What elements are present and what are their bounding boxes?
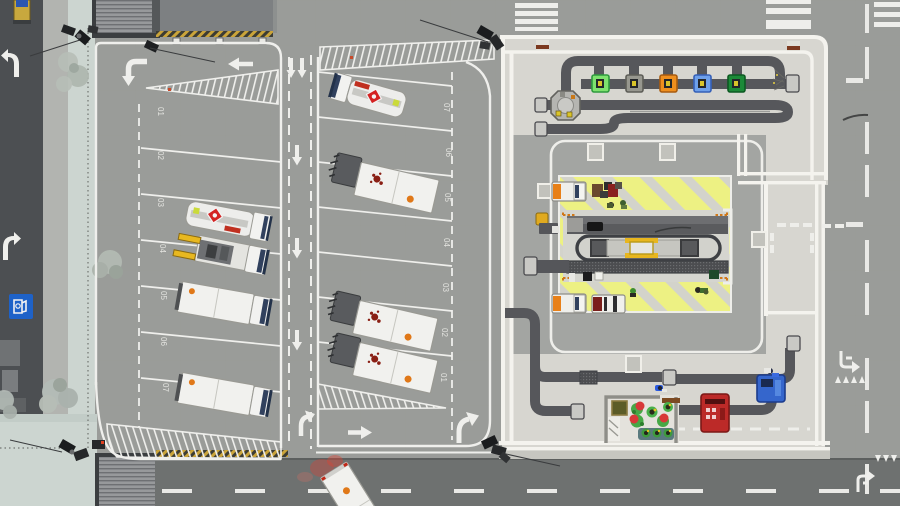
svg-text:07: 07 [161,383,170,392]
svg-text:03: 03 [441,283,450,292]
svg-text:02: 02 [440,328,449,337]
svg-text:03: 03 [156,198,165,207]
svg-text:01: 01 [439,373,448,382]
svg-text:02: 02 [156,151,165,160]
svg-text:04: 04 [442,238,451,247]
svg-text:07: 07 [442,103,451,112]
svg-text:06: 06 [444,148,453,157]
svg-text:05: 05 [159,291,168,300]
svg-text:05: 05 [443,193,452,202]
svg-text:06: 06 [159,337,168,346]
svg-text:01: 01 [156,107,165,116]
svg-text:04: 04 [158,244,167,253]
